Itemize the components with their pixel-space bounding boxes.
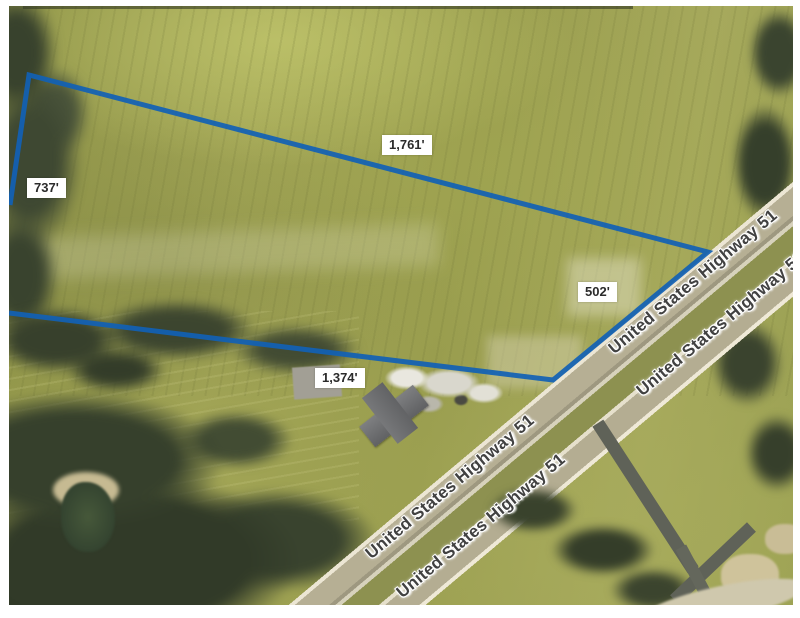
parcel-boundary-line bbox=[9, 75, 708, 380]
aerial-photo: 737' 1,761' 502' 1,374' United States Hi… bbox=[9, 6, 793, 605]
measurement-label-south: 1,374' bbox=[315, 368, 365, 388]
measurement-label-north: 1,761' bbox=[382, 135, 432, 155]
measurement-label-west: 737' bbox=[27, 178, 66, 198]
measurement-label-east: 502' bbox=[578, 282, 617, 302]
